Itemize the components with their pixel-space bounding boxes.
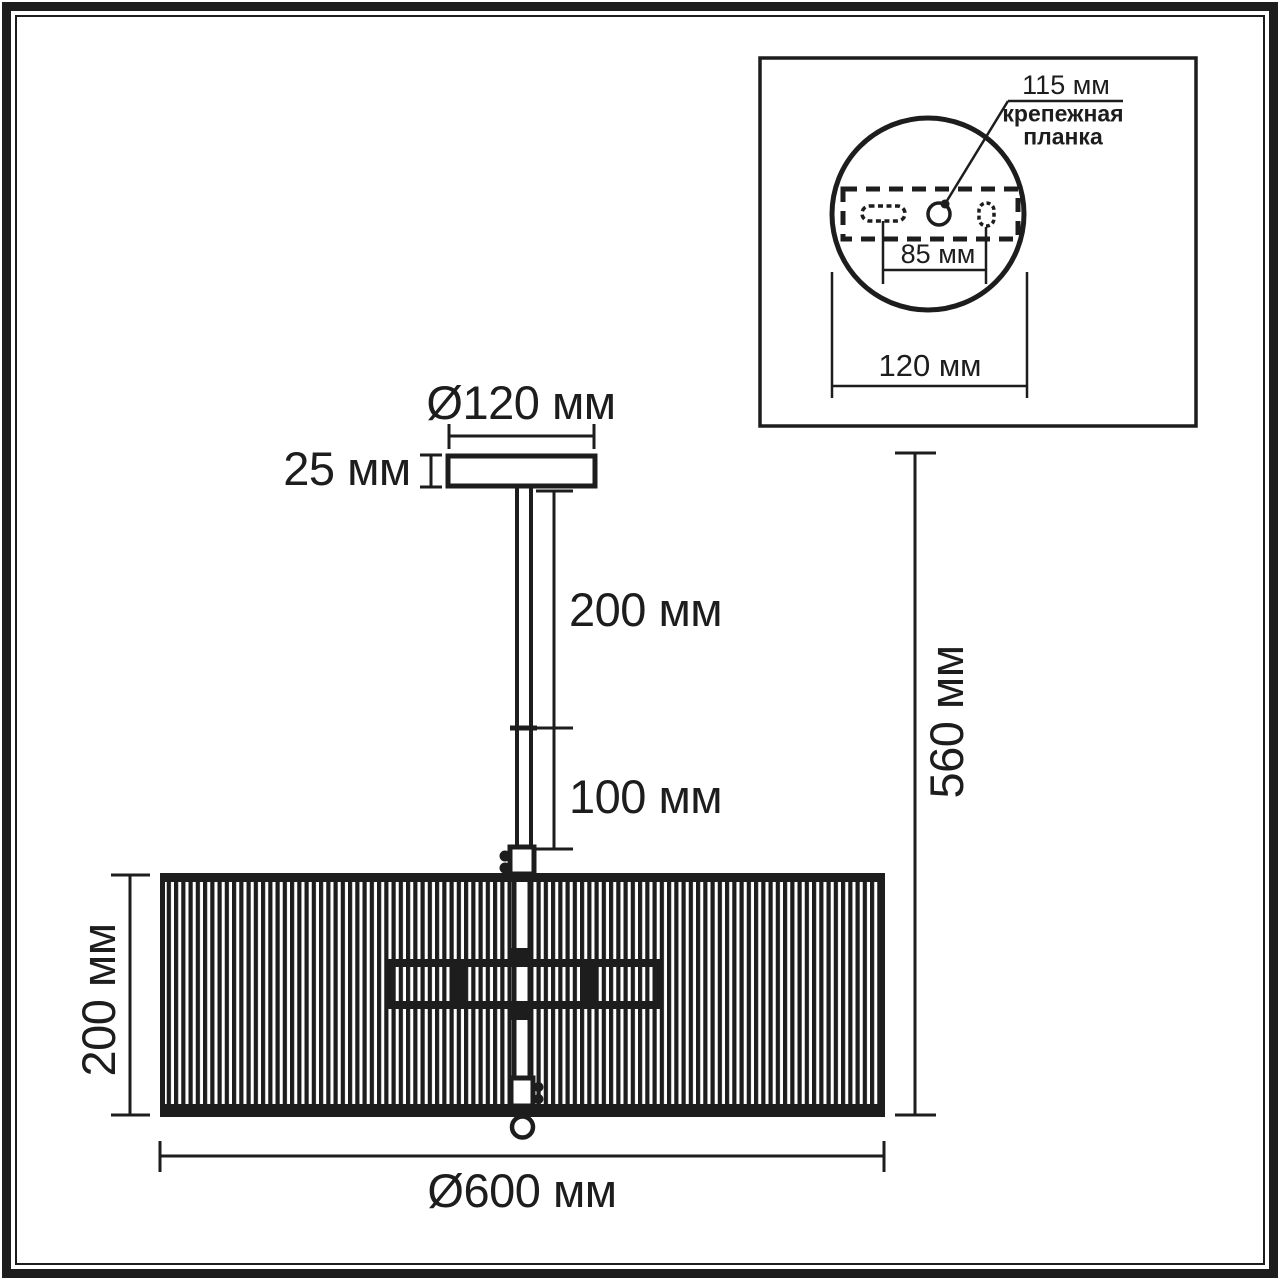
leader-dot (941, 200, 950, 209)
lamp-canopy (448, 456, 595, 486)
overall-height-label: 560 мм (923, 645, 971, 798)
inset-bracket-label-line1: крепежная (1002, 103, 1123, 126)
inset-bracket-label-line2: планка (1002, 126, 1123, 149)
lamp-rod (510, 486, 537, 858)
shade-diameter-label: Ø600 мм (427, 1167, 616, 1215)
inset-hole-spacing-label: 85 мм (901, 241, 976, 269)
dim-rod-sections (536, 491, 573, 849)
rod-through-shade (512, 882, 532, 1078)
lamp-dimension-diagram: { "diagram": { "main_view": { "canopy_di… (0, 0, 1280, 1280)
rod-shade-coupler (500, 847, 535, 874)
inset-plate-width-label: 120 мм (879, 350, 982, 382)
inset-bracket-label: крепежная планка (1002, 103, 1123, 150)
rod-upper-label: 200 мм (569, 586, 722, 634)
rod-lower-label: 100 мм (569, 773, 722, 821)
technical-drawing (0, 0, 1280, 1280)
inset-hole-offset-label: 115 мм (1022, 72, 1110, 100)
shade-height-label: 200 мм (75, 923, 123, 1076)
canopy-diameter-label: Ø120 мм (426, 379, 615, 427)
canopy-height-label: 25 мм (283, 445, 410, 493)
dim-canopy-height (420, 455, 442, 487)
